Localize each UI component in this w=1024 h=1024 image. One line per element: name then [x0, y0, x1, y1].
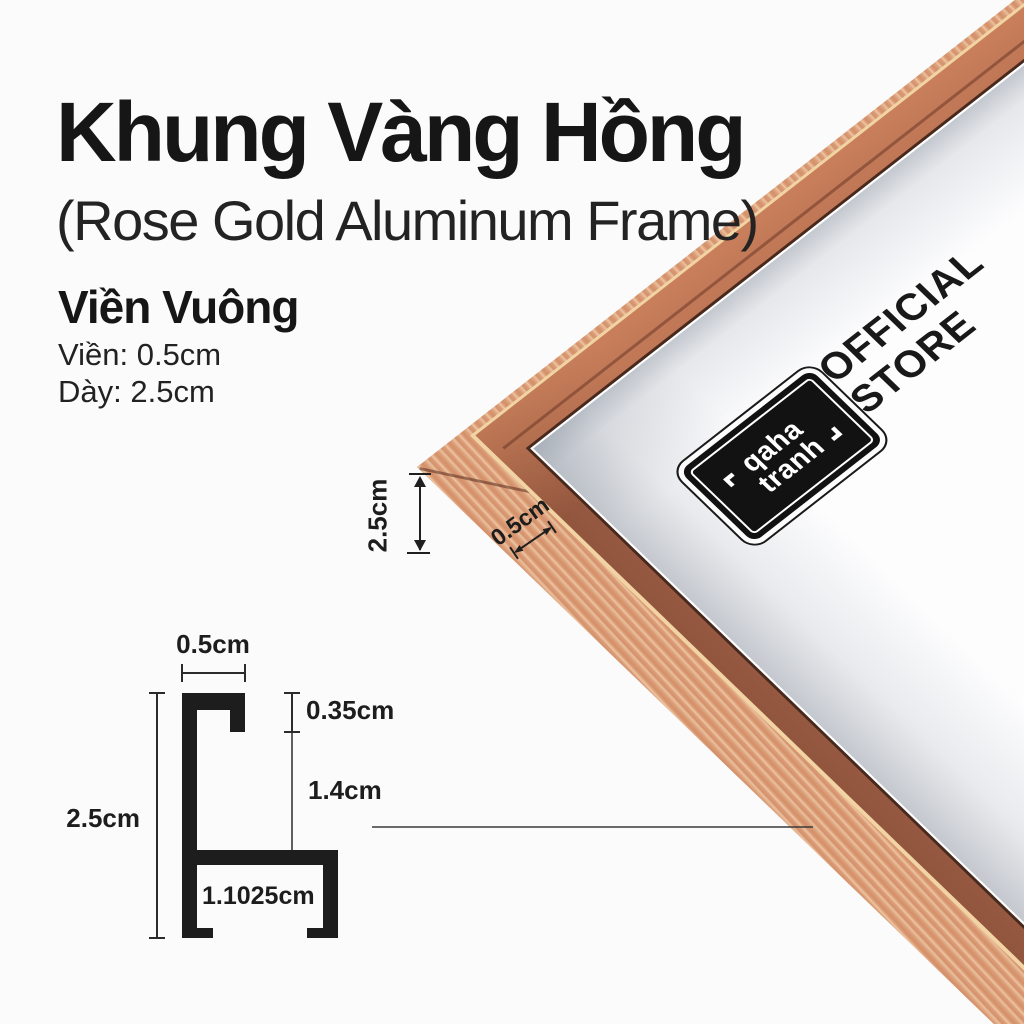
dim-top-width: 0.5cm: [163, 629, 263, 660]
dim-lip-depth: 0.35cm: [306, 695, 394, 726]
dim-total-height: 2.5cm: [50, 803, 140, 834]
photo-thickness-label: 2.5cm: [363, 474, 394, 558]
logo-inner-border: [689, 377, 876, 535]
official-store-print: OFFICIAL STORE: [809, 241, 1024, 421]
photo-thickness-arrow: [407, 474, 431, 553]
spec-border-width: Viền: 0.5cm: [58, 337, 221, 373]
dim-channel-width: 1.1025cm: [202, 882, 315, 911]
dim-inner-height: 1.4cm: [308, 775, 382, 806]
page-subtitle: (Rose Gold Aluminum Frame): [56, 188, 758, 253]
spec-heading: Viền Vuông: [58, 280, 298, 334]
page-title: Khung Vàng Hồng: [56, 88, 744, 176]
product-infographic: Khung Vàng Hồng (Rose Gold Aluminum Fram…: [0, 0, 1024, 1024]
spec-thickness: Dày: 2.5cm: [58, 374, 215, 410]
